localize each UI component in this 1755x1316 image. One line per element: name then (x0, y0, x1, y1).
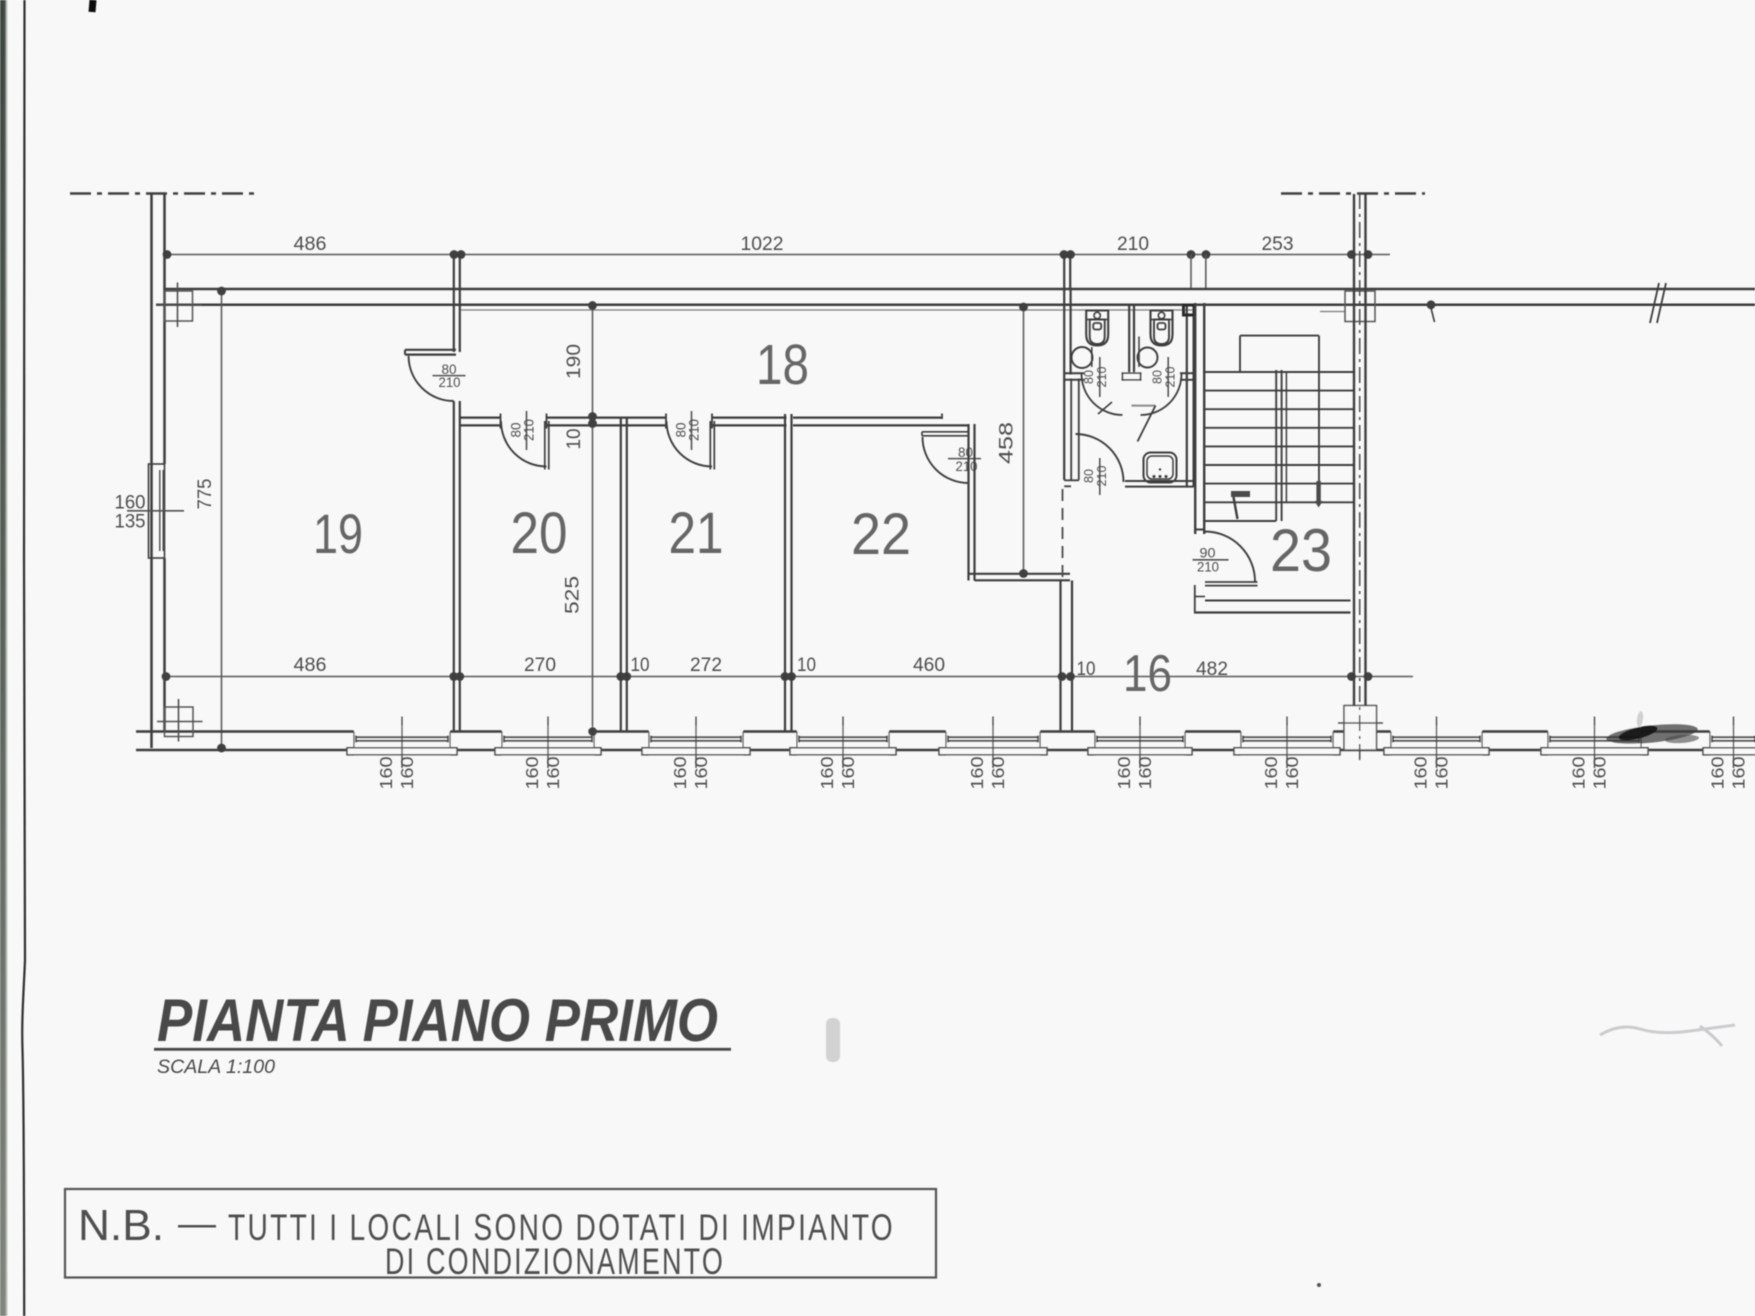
svg-text:253: 253 (1262, 234, 1294, 255)
svg-text:135: 135 (115, 512, 146, 533)
svg-text:190: 190 (563, 344, 585, 379)
svg-text:160: 160 (1282, 756, 1302, 789)
svg-text:160: 160 (376, 756, 396, 789)
svg-text:10: 10 (1077, 659, 1096, 680)
svg-text:272: 272 (690, 655, 722, 676)
svg-text:486: 486 (294, 655, 327, 676)
svg-text:23: 23 (1270, 517, 1332, 584)
svg-text:525: 525 (562, 576, 584, 614)
svg-text:—: — (178, 1203, 216, 1245)
svg-text:160: 160 (543, 756, 563, 789)
svg-text:775: 775 (194, 478, 216, 509)
svg-text:160: 160 (691, 756, 711, 789)
svg-text:210: 210 (1094, 367, 1109, 388)
svg-text:160: 160 (1114, 756, 1134, 789)
svg-text:210: 210 (687, 419, 702, 441)
svg-text:160: 160 (1410, 756, 1430, 789)
svg-text:22: 22 (851, 502, 911, 567)
svg-text:19: 19 (313, 502, 363, 565)
svg-text:160: 160 (817, 756, 837, 789)
svg-text:160: 160 (1728, 756, 1748, 789)
svg-text:10: 10 (797, 655, 816, 676)
svg-text:160: 160 (988, 756, 1008, 789)
svg-text:160: 160 (670, 756, 690, 789)
svg-text:16: 16 (1123, 645, 1172, 703)
svg-text:210: 210 (439, 375, 461, 390)
svg-text:90: 90 (1200, 546, 1216, 561)
svg-text:1022: 1022 (741, 234, 784, 255)
svg-text:210: 210 (1197, 560, 1219, 575)
svg-text:210: 210 (1163, 367, 1178, 388)
svg-text:210: 210 (1117, 234, 1149, 255)
svg-text:18: 18 (756, 333, 809, 397)
svg-text:458: 458 (996, 422, 1018, 464)
svg-text:160: 160 (1135, 756, 1155, 789)
svg-text:160: 160 (1261, 756, 1281, 789)
svg-text:270: 270 (524, 655, 556, 676)
svg-text:482: 482 (1196, 659, 1228, 680)
svg-text:486: 486 (294, 234, 327, 255)
svg-text:80: 80 (958, 445, 973, 460)
svg-text:160: 160 (838, 756, 858, 789)
svg-text:160: 160 (1589, 756, 1609, 789)
svg-text:N.B.: N.B. (78, 1201, 164, 1250)
svg-text:DI CONDIZIONAMENTO: DI CONDIZIONAMENTO (385, 1241, 725, 1282)
svg-text:460: 460 (913, 655, 945, 676)
svg-text:10: 10 (563, 428, 585, 449)
svg-text:160: 160 (522, 756, 542, 789)
svg-text:210: 210 (522, 419, 537, 441)
svg-text:21: 21 (669, 501, 724, 566)
svg-text:SCALA 1:100: SCALA 1:100 (157, 1057, 275, 1078)
svg-text:160: 160 (1568, 756, 1588, 789)
svg-text:160: 160 (1431, 756, 1451, 789)
svg-text:210: 210 (1094, 466, 1109, 487)
svg-text:PIANTA PIANO PRIMO: PIANTA PIANO PRIMO (157, 987, 718, 1054)
svg-text:160: 160 (967, 756, 987, 789)
svg-text:20: 20 (511, 501, 568, 566)
svg-text:10: 10 (631, 655, 650, 676)
svg-text:160: 160 (1707, 756, 1727, 789)
svg-text:160: 160 (397, 756, 417, 789)
